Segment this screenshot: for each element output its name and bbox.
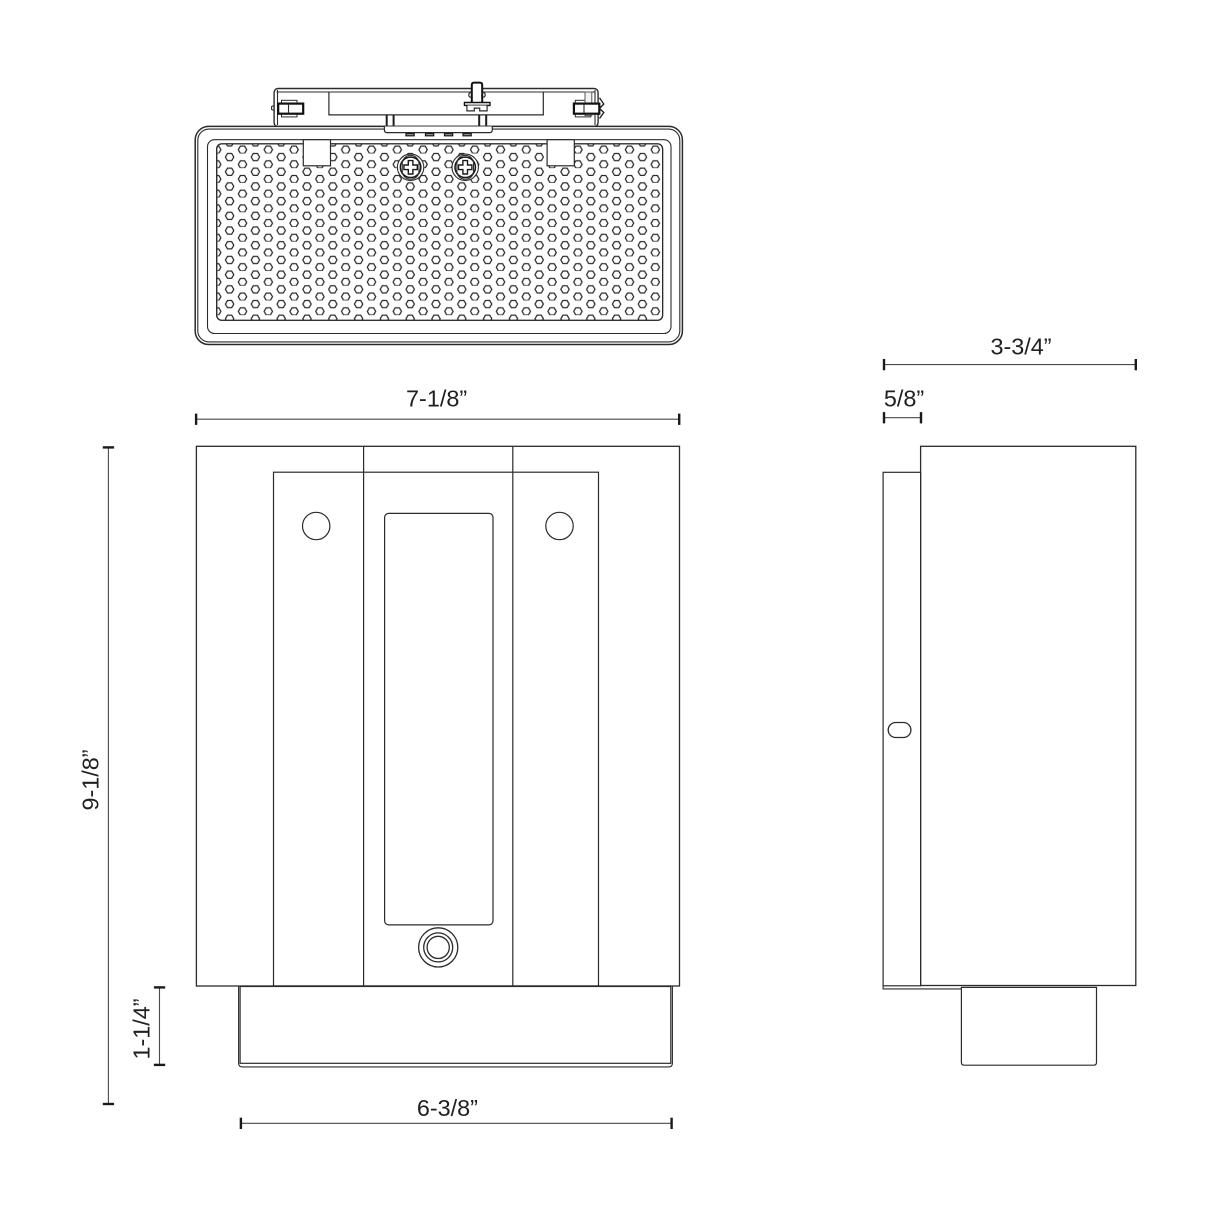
- svg-text:7-1/8”: 7-1/8”: [406, 385, 467, 411]
- svg-text:1-1/4”: 1-1/4”: [128, 998, 154, 1059]
- svg-text:9-1/8”: 9-1/8”: [77, 749, 103, 810]
- svg-text:5/8”: 5/8”: [884, 386, 924, 412]
- svg-text:3-3/4”: 3-3/4”: [990, 334, 1051, 360]
- svg-text:6-3/8”: 6-3/8”: [417, 1095, 478, 1121]
